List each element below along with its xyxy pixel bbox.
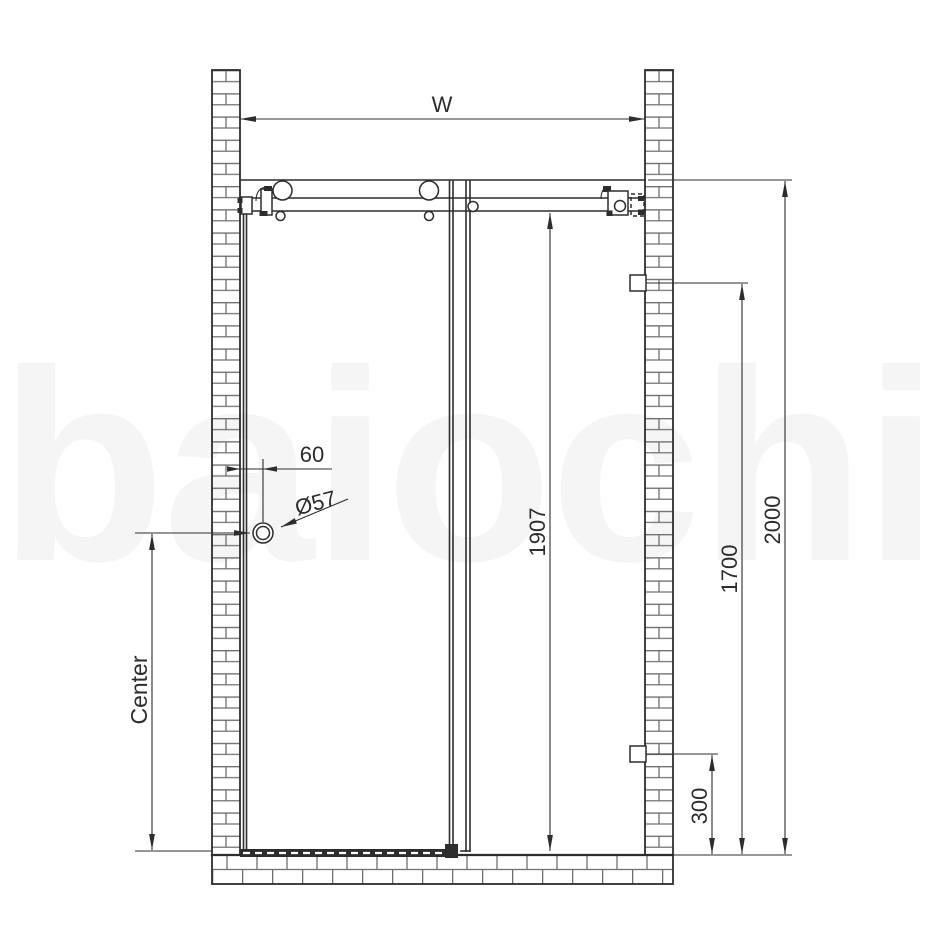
roller-right-bolt [425, 212, 434, 221]
left-clamp-cap-bottom [260, 211, 268, 216]
handle-knob [253, 523, 273, 543]
left-bracket-screw-bottom [238, 208, 243, 213]
drawing-canvas: baiochi [0, 0, 942, 942]
dimension-overall-height: 2000 [760, 181, 785, 854]
upper-wall-clamp [630, 275, 646, 291]
shower-door-technical-drawing: baiochi [0, 0, 942, 942]
left-bracket-plate [241, 197, 252, 214]
fixed-panel-bolt [468, 202, 478, 212]
right-clamp-bolt [615, 201, 626, 212]
dimension-width: W [240, 92, 645, 119]
dim-label-2000: 2000 [760, 496, 785, 545]
dim-label-center: Center [126, 655, 152, 724]
right-clamp-cap-bottom [607, 211, 613, 217]
hidden-profile-screw-top [638, 196, 644, 201]
lower-wall-clamp [630, 746, 646, 762]
door-rollers [273, 181, 439, 221]
dim-label-60: 60 [300, 442, 324, 467]
right-wall [645, 70, 673, 855]
roller-right [420, 181, 439, 200]
dim-label-300: 300 [687, 788, 712, 825]
knob-inner-ring [257, 527, 270, 540]
roller-left-bolt [276, 212, 285, 221]
dim-label-1907: 1907 [525, 508, 550, 557]
bottom-guide-block [445, 844, 458, 858]
dimension-door-height: 1907 [525, 213, 550, 851]
top-track [240, 180, 645, 211]
hidden-profile-screw-bottom [638, 210, 644, 216]
dim-label-width: W [432, 92, 453, 117]
watermark-text: baiochi [0, 314, 937, 618]
dim-label-1700: 1700 [717, 545, 742, 594]
floor-bricks [212, 855, 673, 884]
left-clamp-cap-top [264, 186, 272, 191]
left-wall [212, 70, 240, 855]
left-bracket-screw-top [238, 198, 243, 203]
floor [212, 855, 673, 884]
dimension-lower-bracket: 300 [687, 755, 712, 854]
roller-left [273, 181, 292, 200]
